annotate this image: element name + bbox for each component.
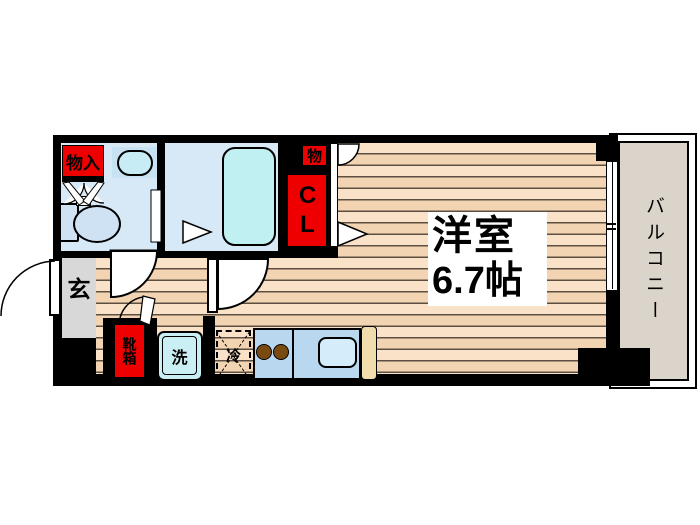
hallway-door-arc: [120, 297, 143, 318]
hallway-door-leaf: [140, 296, 155, 325]
bathroom-doorway: [151, 190, 161, 242]
floor-plan: バルコニー 玄 物入 物 CL 靴箱 洗: [0, 0, 700, 525]
toilet-door-swing: [111, 251, 157, 297]
closet-door-wedge: [338, 222, 367, 246]
storage-wall-line: [62, 177, 104, 182]
hall-door-swing: [218, 259, 268, 309]
door-swing-overlay: [0, 0, 700, 525]
upper-storage-door-swing: [338, 144, 359, 165]
bathroom-door-wedge: [183, 221, 211, 243]
entrance-door-arc: [1, 261, 55, 316]
